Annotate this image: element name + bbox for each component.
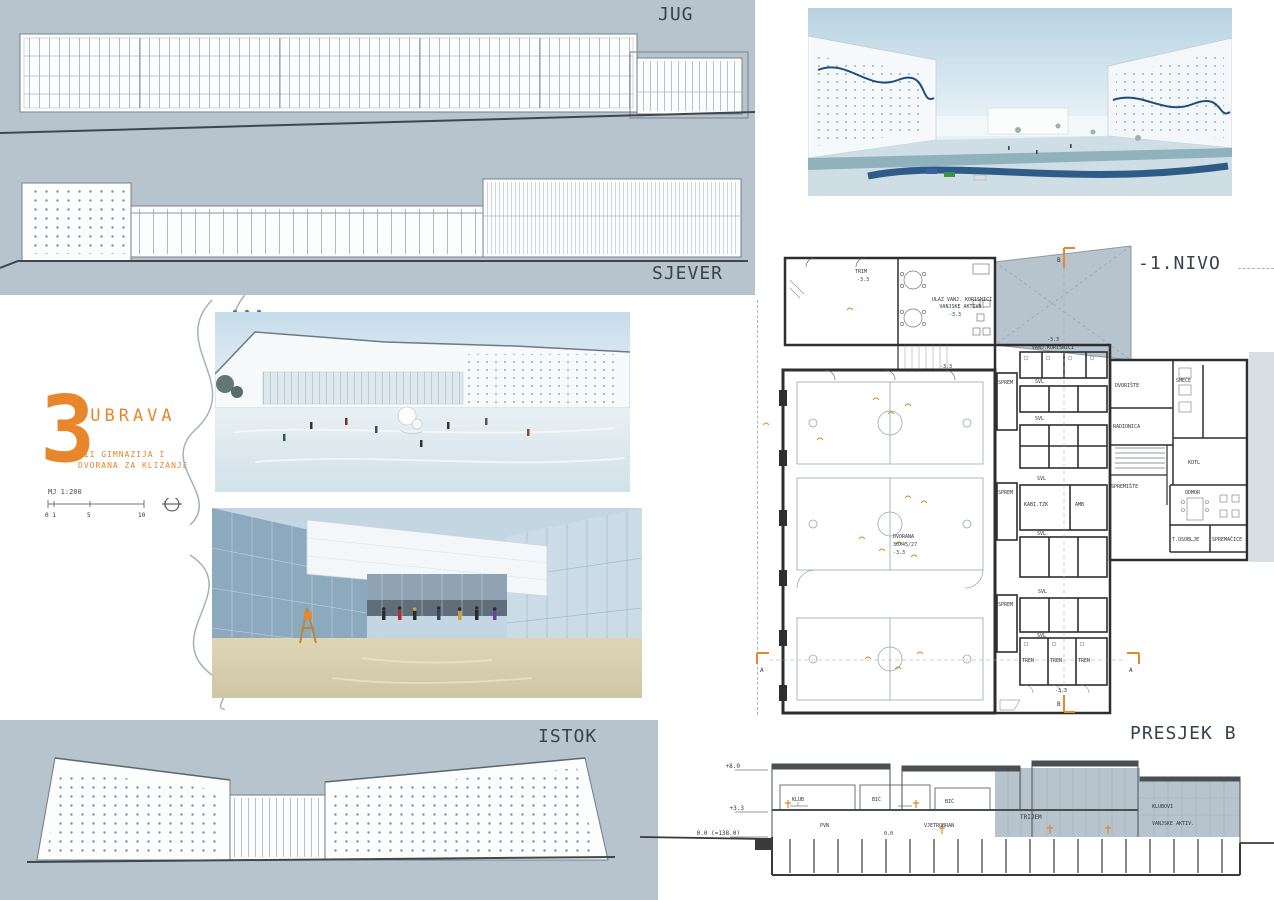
room-dvoriste: DVORIŠTE xyxy=(1115,382,1139,389)
room-radionica: RADIONICA xyxy=(1113,424,1140,430)
svg-text:SPREM: SPREM xyxy=(998,490,1013,496)
room-dvorana: DVORANA xyxy=(893,534,914,540)
level-8: +8.0 xyxy=(726,763,741,770)
svg-text:SPREM: SPREM xyxy=(998,380,1013,386)
room-bic-2: BIĆ xyxy=(945,798,954,805)
room-t-osoblje: T.OSOBLJE xyxy=(1172,537,1199,543)
svg-text:-3.3: -3.3 xyxy=(1055,688,1067,694)
project-subtitle-2: DVORANA ZA KLIZANJE xyxy=(78,461,189,470)
svg-text:0.0: 0.0 xyxy=(884,831,893,837)
room-pvn: PVN xyxy=(820,823,829,829)
room-ulaz-line1: ULAZ VANJ. KORISNICI xyxy=(932,297,992,303)
project-subtitle-1: XII GIMNAZIJA I xyxy=(78,450,165,459)
room-trijem: TRIJEM xyxy=(1020,814,1042,821)
room-spremiste: SPREMIŠTE xyxy=(1111,483,1138,490)
room-bic-1: BIĆ xyxy=(872,796,881,803)
svg-text:B: B xyxy=(1057,701,1061,708)
room-smece: SMEĆE xyxy=(1176,377,1191,384)
section-drawing: +8.0 +3.3 0.0 (=138.0) KLUB BIĆ BIĆ PVN … xyxy=(640,740,1274,890)
svg-text:-3.3: -3.3 xyxy=(940,364,952,370)
render-courtyard xyxy=(212,508,642,698)
panel-elevations-south-north: JUG SJEVER xyxy=(0,0,755,295)
scale-tick-0: 0 1 xyxy=(45,512,56,519)
room-kotl: KOTL xyxy=(1188,460,1200,466)
room-trim: TRIM xyxy=(855,269,867,275)
svg-text:A: A xyxy=(1129,667,1133,674)
svg-text:-3.3: -3.3 xyxy=(949,312,961,318)
elevation-drawings-jug-sjever xyxy=(0,0,755,295)
room-ulaz-line2: VANJSKE AKTIVN. xyxy=(939,304,984,310)
elevation-istok xyxy=(25,740,625,880)
scale-text: MJ 1:200 xyxy=(48,488,82,496)
room-spremacice: SPREMAČICE xyxy=(1212,536,1242,543)
svg-text:A: A xyxy=(760,667,764,674)
section-marker-a-left: A xyxy=(757,653,769,674)
room-klub: KLUB xyxy=(792,797,804,803)
scale-tick-2: 10 xyxy=(138,512,146,519)
title-block: 3 DUBRAVA XII GIMNAZIJA I DVORANA ZA KLI… xyxy=(40,398,240,528)
room-vanj-korisnici: VANJ.KORISNICI xyxy=(1032,345,1074,351)
plan-odmor-furniture xyxy=(1179,368,1239,520)
room-amb: AMB xyxy=(1075,502,1084,508)
panel-elevation-istok: ISTOK xyxy=(0,720,658,900)
north-arrow-icon xyxy=(162,498,182,511)
svg-text:SVL: SVL xyxy=(1035,379,1044,385)
scale-tick-1: 5 xyxy=(87,512,91,519)
presentation-board: JUG SJEVER 3 xyxy=(0,0,1274,900)
svg-text:-3.3: -3.3 xyxy=(1047,337,1059,343)
section-ground-line xyxy=(640,837,1274,843)
plan-east-shading xyxy=(1249,352,1274,562)
svg-text:SPREM: SPREM xyxy=(998,602,1013,608)
section-marker-a-right: A xyxy=(1127,653,1139,674)
plan-courts xyxy=(797,382,983,700)
svg-text:-3.3: -3.3 xyxy=(893,550,905,556)
render-courtyard-floor xyxy=(212,638,642,698)
svg-text:-3.3: -3.3 xyxy=(857,277,869,283)
level-33: +3.3 xyxy=(730,805,745,812)
label-istok: ISTOK xyxy=(538,726,597,747)
svg-text:30X45/27: 30X45/27 xyxy=(893,542,917,548)
section-basement xyxy=(756,837,1240,875)
scale-bar: 0 1 5 10 xyxy=(44,498,194,522)
ground-line-jug xyxy=(0,112,755,133)
svg-text:SVL: SVL xyxy=(1035,416,1044,422)
svg-text:TREN: TREN xyxy=(1050,658,1062,664)
elevation-sjever xyxy=(0,179,748,268)
svg-text:TREN: TREN xyxy=(1022,658,1034,664)
render-ice-surface xyxy=(215,408,630,492)
room-vanjske-aktiv: VANJSKE AKTIV. xyxy=(1152,821,1194,827)
svg-text:SVL: SVL xyxy=(1037,476,1046,482)
elevation-jug xyxy=(0,34,755,133)
room-vjetrobran: VJETROBRAN xyxy=(924,823,954,829)
room-odmor: ODMOR xyxy=(1185,490,1201,496)
svg-text:TREN: TREN xyxy=(1078,658,1090,664)
svg-text:B: B xyxy=(1057,257,1061,264)
plan-skater-marks xyxy=(763,308,927,669)
floor-plan: B B A A TRIM -3.3 ULAZ VANJ. KORISNICI V… xyxy=(755,240,1274,720)
svg-text:SVL: SVL xyxy=(1038,589,1047,595)
section-trijem-volume xyxy=(995,768,1140,837)
level-0: 0.0 (=138.0) xyxy=(697,830,740,837)
room-kabi: KABI.TZK xyxy=(1024,502,1048,508)
section-marker-b-bottom: B xyxy=(1057,695,1075,712)
label-sjever: SJEVER xyxy=(652,263,723,284)
room-klubovi: KLUBOVI xyxy=(1152,804,1173,810)
render-exterior-rink xyxy=(215,312,630,492)
ground-line-sjever xyxy=(0,261,748,268)
svg-text:SVL: SVL xyxy=(1037,633,1046,639)
render-aerial-plaza xyxy=(808,8,1232,196)
project-name: DUBRAVA xyxy=(76,406,176,426)
label-jug: JUG xyxy=(658,4,694,25)
svg-text:SVL: SVL xyxy=(1037,531,1046,537)
